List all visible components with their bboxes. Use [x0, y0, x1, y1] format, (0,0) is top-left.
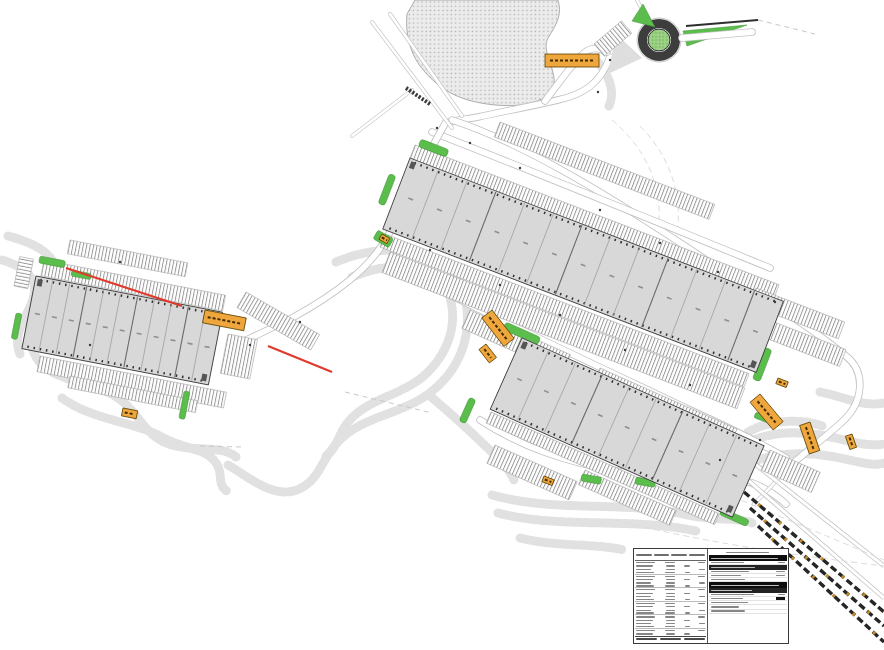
schedule-table-summary — [708, 549, 788, 643]
roundabout — [608, 4, 815, 74]
site-masterplan-drawing — [0, 0, 884, 650]
schedule-table-rows — [635, 561, 706, 636]
boundary-dashes — [200, 392, 432, 447]
schedule-table-total-row — [635, 636, 706, 642]
road-edge-line — [686, 20, 758, 26]
roundabout-island — [648, 29, 670, 51]
schedule-table-column-headers — [635, 550, 706, 561]
attenuation-pond — [407, 0, 560, 106]
buildings — [22, 158, 784, 517]
schedule-table-areas — [634, 549, 708, 643]
schedule-table — [633, 548, 789, 644]
summary-empty-area — [709, 614, 787, 642]
verge-island-northwest — [632, 4, 655, 27]
